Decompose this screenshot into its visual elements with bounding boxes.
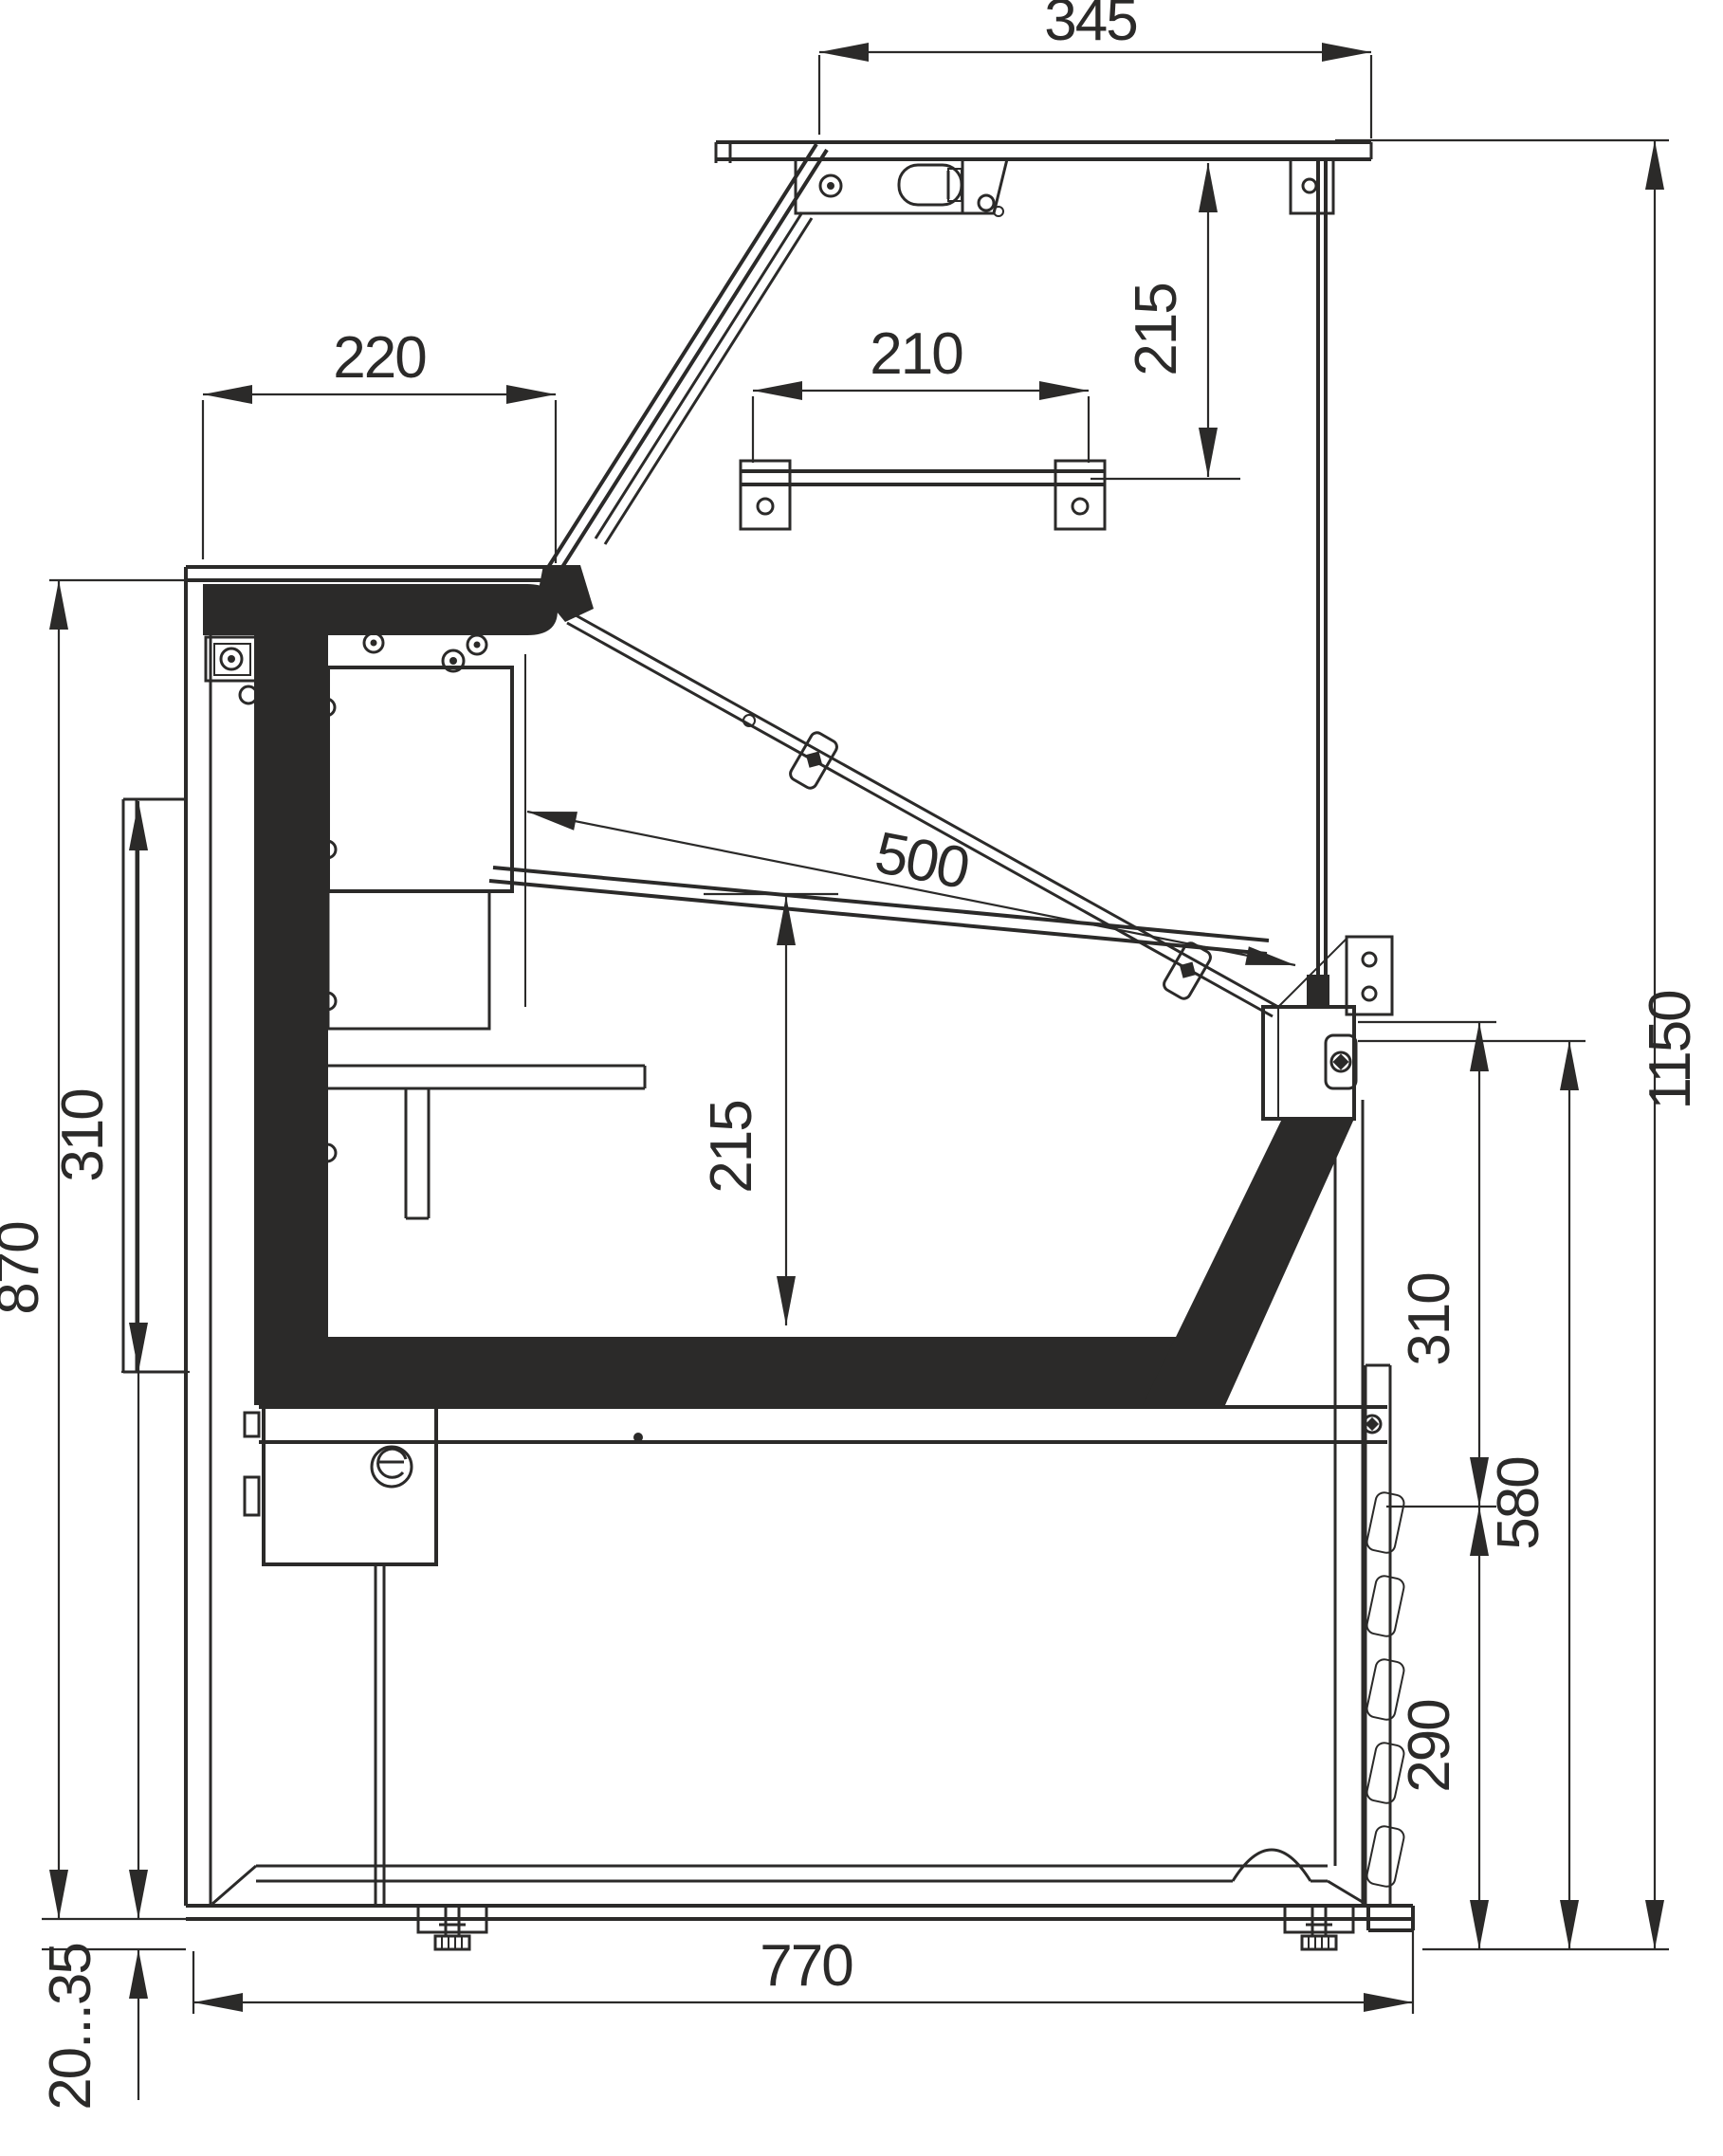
dim-label: 215: [1124, 283, 1189, 375]
dim-louver-height: 290: [1397, 1507, 1489, 1949]
lamp-fixture: [796, 159, 1007, 216]
dim-label: 580: [1486, 1457, 1551, 1550]
dim-canopy-height: 215: [1091, 163, 1240, 479]
dim-top-panel-width: 345: [819, 0, 1371, 138]
electrical-box: [245, 1407, 436, 1564]
adjustable-feet: [418, 1906, 1353, 1949]
dim-label: 310: [50, 1089, 116, 1182]
dim-shelf-width: 210: [753, 321, 1089, 463]
left-wall-and-counter: [186, 567, 558, 1906]
lower-cabinet: [186, 1100, 1413, 1930]
dim-label: 310: [1397, 1273, 1462, 1366]
louver-panel: [1366, 1365, 1405, 1904]
front-glass-vertical: [1318, 159, 1326, 1007]
inner-sloped-glass: [567, 612, 1278, 1016]
top-shelf: [741, 461, 1105, 529]
dim-foot-range: 20...35: [38, 1372, 186, 2110]
evaporator-box: [328, 633, 645, 1218]
drawing-canvas: 345 215 220 210 500: [0, 0, 1723, 2156]
dim-label: 220: [333, 325, 426, 391]
foot-right: [1285, 1906, 1353, 1949]
dim-label: 1150: [1638, 991, 1703, 1110]
dim-bumper-height: 310: [50, 801, 190, 1372]
foot-left: [418, 1906, 486, 1949]
dim-deck-depth: 500: [525, 802, 1297, 975]
dim-label: 215: [699, 1101, 764, 1193]
dim-label: 345: [1044, 0, 1136, 53]
glass-clip: [1162, 941, 1213, 1000]
dim-well-height: 215: [699, 894, 838, 1325]
dim-base-section-height: 580: [1358, 1041, 1586, 1949]
display-case-section-drawing: 345 215 220 210 500: [0, 0, 1723, 2156]
dim-front-glass-lower: 310: [1358, 1022, 1496, 1507]
dim-label: 290: [1397, 1700, 1462, 1793]
canopy-top-panel: [716, 142, 1371, 213]
dim-counter-height: 870: [0, 580, 425, 1919]
left-bumper-panel: [123, 799, 186, 1372]
dim-label: 870: [0, 1222, 51, 1315]
sloped-front-glass: [539, 144, 827, 622]
dim-label: 500: [870, 820, 973, 902]
dim-label: 770: [760, 1933, 852, 1999]
dim-counter-depth: 220: [203, 325, 556, 563]
dim-base-width: 770: [193, 1927, 1413, 2014]
dim-label: 210: [870, 321, 962, 387]
dim-label: 20...35: [38, 1944, 103, 2110]
